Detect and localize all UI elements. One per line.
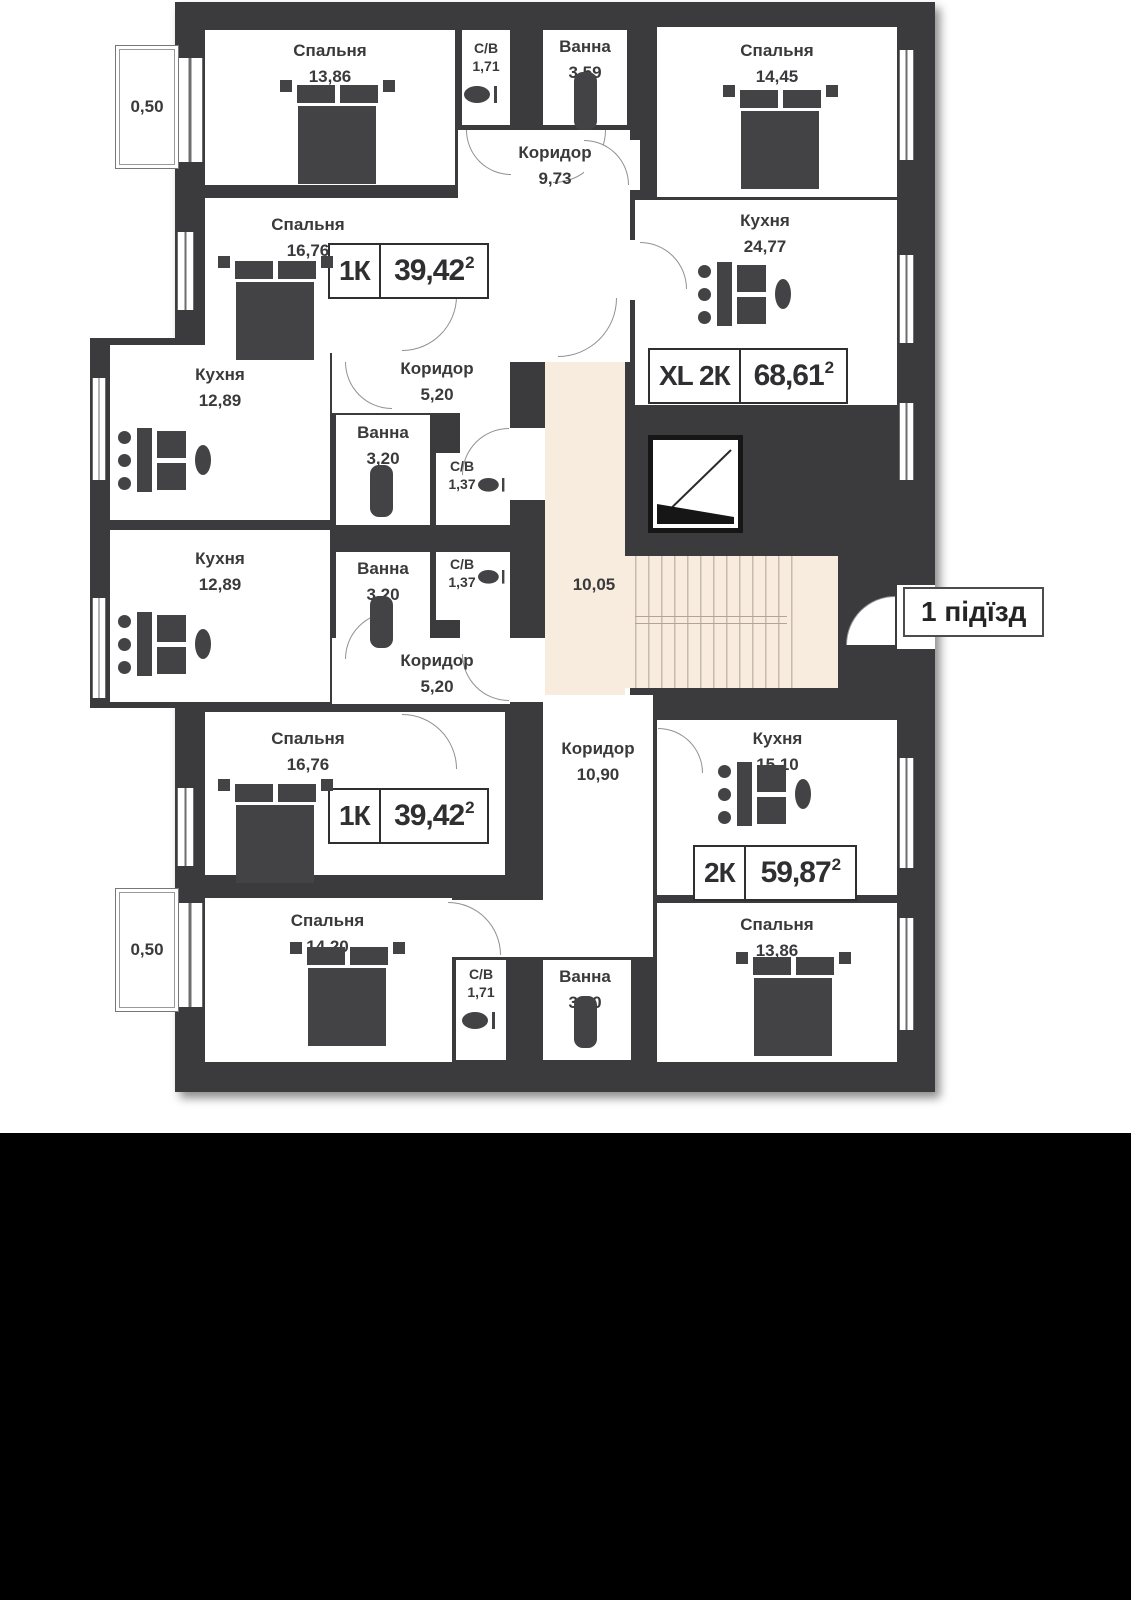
bedroomtr-door-opening: [630, 140, 640, 190]
elevator-door-icon: [653, 440, 738, 528]
bathtub-icon: [370, 596, 393, 648]
floor-plan-canvas: 0,50 0,50 Спальня13,86 С/В1,71 Ванна3,59…: [0, 0, 1131, 1600]
label-corridor-2k: Коридор10,90: [546, 736, 650, 787]
label-stairwell-area: 10,05: [556, 572, 632, 598]
bathtub-icon: [574, 72, 597, 130]
toilet-icon: [478, 570, 504, 584]
window: [92, 378, 106, 480]
unit-top-entry-opening: [505, 428, 547, 500]
label-corridor-unit-top: Коридор5,20: [362, 356, 512, 407]
bed-icon: [272, 942, 422, 1046]
unit-badge-1k-top: 1К 39,422: [328, 243, 489, 299]
passage-unit-bottom: [460, 620, 510, 638]
kitchen-set-icon: [698, 262, 791, 326]
unit-area: 68,612: [739, 350, 846, 402]
unit-type: XL 2К: [650, 350, 739, 402]
balcony-door-window: [177, 58, 203, 162]
window: [899, 403, 914, 480]
bed-icon: [262, 80, 412, 184]
elevator-cab: [648, 435, 743, 533]
room-corridor-2k: [543, 695, 653, 957]
stair-hall: [545, 362, 625, 695]
toilet-icon: [464, 86, 497, 103]
unit-badge-1k-bottom: 1К 39,422: [328, 788, 489, 844]
label-corridor-top: Коридор9,73: [480, 140, 630, 191]
bathtub-icon: [370, 465, 393, 517]
label-bath-unit-top: Ванна3,20: [336, 420, 430, 471]
stair-landing-line: [635, 616, 787, 624]
label-bedroom-16-bottom: Спальня16,76: [218, 726, 398, 777]
window: [177, 232, 194, 310]
kitchen-set-icon: [118, 612, 211, 676]
unit-area: 39,422: [379, 790, 487, 842]
balcony-top: 0,50: [115, 45, 179, 169]
unit-badge-2k: 2К 59,872: [693, 845, 857, 901]
kitchenxl-door-opening: [630, 240, 640, 300]
toilet-icon: [462, 1012, 495, 1029]
balcony-bottom: 0,50: [115, 888, 179, 1012]
unit-area: 59,872: [744, 847, 855, 899]
window: [899, 50, 914, 160]
bed-icon: [718, 952, 868, 1056]
unit-area: 39,422: [379, 245, 487, 297]
unit-type: 2К: [695, 847, 744, 899]
bed-icon: [200, 779, 350, 883]
bed-icon: [705, 85, 855, 189]
label-kitchen-left-top: Кухня12,89: [130, 362, 310, 413]
kitchen-set-icon: [718, 762, 811, 826]
label-kitchen-xl: Кухня24,77: [665, 208, 865, 259]
bed-icon: [200, 256, 350, 360]
window: [92, 598, 106, 698]
staircase: [625, 556, 838, 688]
balcony-area-label: 0,50: [130, 940, 163, 960]
kitchen-set-icon: [118, 428, 211, 492]
label-corridor-unit-bottom: Коридор5,20: [362, 648, 512, 699]
window: [899, 758, 914, 868]
label-wc-top: С/В1,71: [458, 40, 514, 75]
label-kitchen-left-bottom: Кухня12,89: [130, 546, 310, 597]
entrance-label: 1 підїзд: [903, 587, 1044, 637]
label-wc-bottom: С/В1,71: [456, 966, 506, 1001]
window: [177, 788, 194, 866]
label-bedroom-top-right: Спальня14,45: [677, 38, 877, 89]
bathtub-icon: [574, 996, 597, 1048]
unit-badge-xl2k: XL 2К 68,612: [648, 348, 848, 404]
window: [899, 255, 914, 343]
balcony-door-window: [177, 903, 203, 1007]
black-footer-band: [0, 1133, 1131, 1600]
window: [899, 918, 914, 1030]
toilet-icon: [478, 478, 504, 492]
balcony-area-label: 0,50: [130, 97, 163, 117]
